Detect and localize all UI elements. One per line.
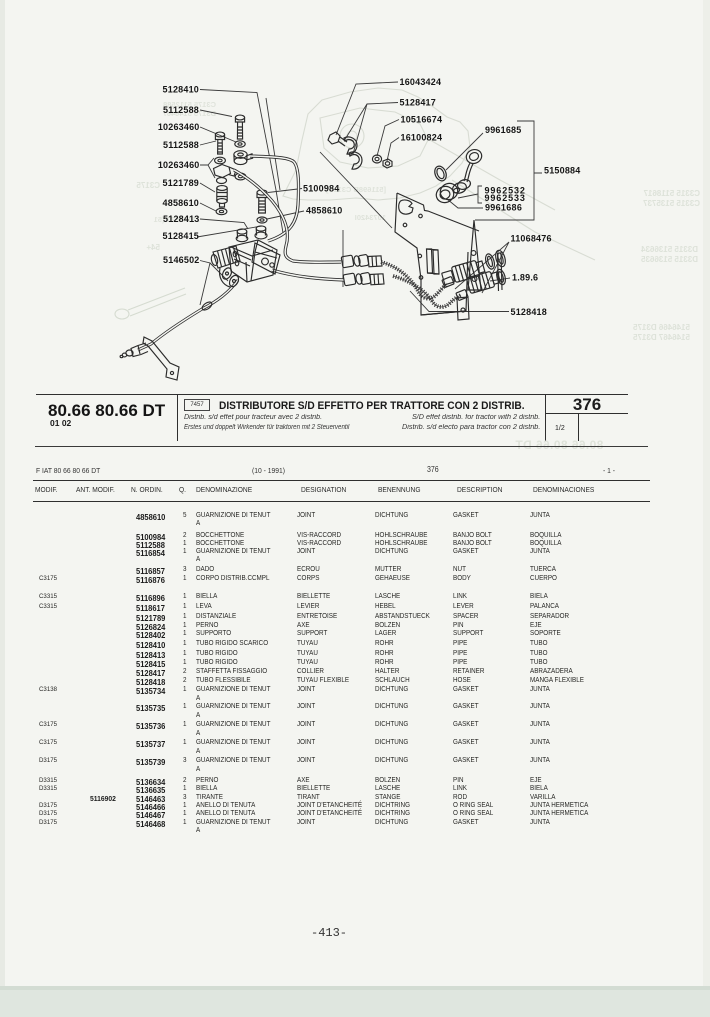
svg-text:4858610: 4858610 [306, 206, 342, 216]
svg-text:5128410: 5128410 [163, 85, 199, 95]
svg-text:5128413: 5128413 [163, 214, 199, 224]
svg-text:5146466 D3175: 5146466 D3175 [633, 323, 690, 332]
svg-text:C3175: C3175 [136, 181, 160, 190]
svg-text:5121789: 5121789 [163, 178, 199, 188]
svg-text:11068476: 11068476 [511, 234, 552, 244]
svg-text:4858610: 4858610 [163, 198, 199, 208]
svg-text:D3315 5136634: D3315 5136634 [641, 245, 698, 254]
svg-text:16043424: 16043424 [400, 77, 442, 87]
svg-text:5146467 D3175: 5146467 D3175 [633, 333, 690, 342]
svg-text:9962533: 9962533 [485, 193, 526, 203]
svg-text:5112588: 5112588 [163, 105, 199, 115]
svg-text:5112588: 5112588 [163, 140, 199, 150]
svg-text:C3315 5135737: C3315 5135737 [643, 199, 700, 208]
svg-text:10516674: 10516674 [401, 115, 443, 125]
svg-text:9961685: 9961685 [485, 125, 521, 135]
svg-text:5128417: 5128417 [400, 98, 436, 108]
svg-text:9961686: 9961686 [485, 203, 522, 213]
svg-text:10263460: 10263460 [158, 122, 200, 132]
svg-text:D3315 5136635: D3315 5136635 [641, 255, 698, 264]
svg-text:5128415: 5128415 [163, 231, 199, 241]
svg-text:16100824: 16100824 [401, 133, 443, 143]
svg-text:1073420I: 1073420I [355, 213, 386, 222]
svg-text:10263460: 10263460 [158, 160, 200, 170]
svg-text:5146502: 5146502 [163, 255, 199, 265]
svg-text:5100984: 5100984 [303, 184, 339, 194]
svg-text:5128418: 5128418 [511, 307, 547, 317]
svg-text:5150884: 5150884 [544, 166, 580, 176]
svg-text:1.89.6: 1.89.6 [512, 273, 538, 283]
svg-text:54+: 54+ [146, 243, 160, 252]
svg-text:C3315 5118617: C3315 5118617 [643, 189, 700, 198]
